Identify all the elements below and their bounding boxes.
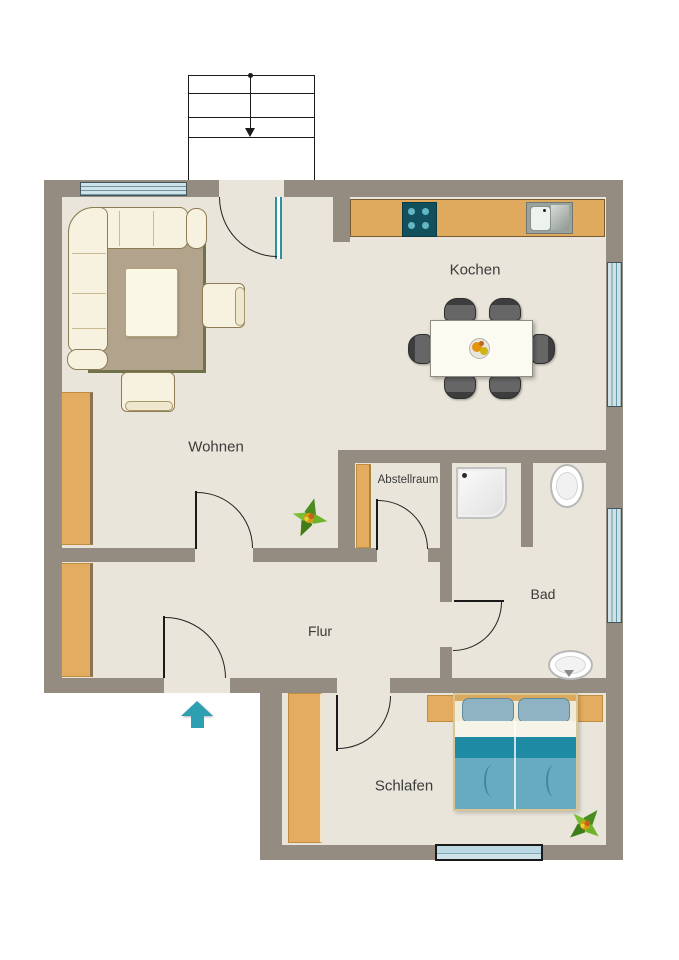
wall-schlafen-left [260, 693, 282, 860]
armchair-back [125, 401, 173, 411]
wall-abstell-bottom-left [355, 548, 377, 562]
plant-icon [287, 496, 331, 540]
sink-drain-dot [543, 209, 546, 212]
room-label-schlafen: Schlafen [375, 778, 433, 795]
wall-flur-bottom-right [230, 678, 337, 693]
sofa-armrest-bottom [67, 349, 108, 370]
wardrobe-schlafen [288, 693, 323, 843]
wall-kochen-bottom [338, 450, 607, 463]
sink-basin [530, 206, 551, 231]
stair-start-dot [248, 73, 253, 78]
window-schlafen [435, 844, 543, 861]
kitchen-counter [350, 199, 605, 237]
wall-wohnen-flur-left [62, 548, 195, 562]
fruit-yellow [480, 347, 488, 355]
bed-pillow-left [462, 698, 514, 723]
armchair-back [235, 287, 245, 326]
sofa-cushion-seam [72, 293, 106, 294]
shower [456, 467, 507, 519]
fruit-red [479, 341, 484, 346]
sofa-left-section [68, 207, 108, 352]
floor-entrance-doorway [164, 678, 230, 693]
armchair-right [202, 283, 245, 328]
dining-chair-left [408, 334, 431, 364]
sink-drainer [551, 205, 569, 230]
arrow-up-icon [181, 701, 213, 716]
sofa-armrest-right [186, 208, 207, 249]
dining-chair-top-2 [489, 298, 521, 321]
wall-kitchen-stub [333, 197, 350, 242]
cabinet-flur [61, 563, 93, 677]
toilet [550, 464, 584, 508]
wall-bad-left-lower [440, 647, 452, 680]
dining-table [430, 320, 533, 377]
dining-chair-bottom-2 [489, 376, 521, 399]
wall-left [44, 180, 62, 693]
wall-wohnen-flur-right [253, 548, 338, 562]
dining-chair-right [532, 334, 555, 364]
room-label-kochen: Kochen [450, 262, 501, 279]
floor-schlafen-doorway [337, 678, 390, 693]
stair-step [189, 93, 314, 94]
sink-faucet [564, 670, 574, 677]
nightstand-left [427, 695, 455, 722]
cabinet-wohnen [61, 392, 93, 545]
wall-top-right [284, 180, 623, 197]
arrow-down-icon [245, 128, 255, 137]
plant-icon [564, 804, 606, 846]
burner [421, 221, 430, 230]
bed-fold-curve [546, 765, 562, 797]
sofa-cushion-seam [119, 211, 120, 246]
bed-pillow-right [518, 698, 570, 723]
burner [407, 207, 416, 216]
stair-direction-line [250, 75, 251, 135]
wall-bad-left-upper [440, 463, 452, 602]
wall-bad-divider-stub [521, 463, 533, 547]
abstell-shelf [356, 464, 371, 548]
bed-center-divider [514, 721, 516, 809]
burner [421, 207, 430, 216]
floor-stairs-doorway [219, 180, 284, 197]
room-label-bad: Bad [531, 586, 556, 602]
wall-flur-bottom-left [44, 678, 164, 693]
toilet-bowl [556, 472, 578, 500]
sofa-cushion-seam [72, 253, 106, 254]
kitchen-sink [526, 202, 573, 234]
stair-step [189, 137, 314, 138]
stair-step [189, 117, 314, 118]
stove [402, 202, 437, 237]
nightstand-right [576, 695, 603, 722]
room-label-flur: Flur [308, 623, 332, 639]
wall-schlafen-top [390, 678, 623, 693]
coffee-table [125, 268, 178, 337]
shower-drain-dot [462, 473, 467, 478]
window-kochen [607, 262, 622, 407]
room-label-abstellraum: Abstellraum [378, 474, 439, 486]
room-label-wohnen: Wohnen [188, 439, 244, 456]
armchair-bottom [121, 372, 175, 412]
sofa-cushion-seam [153, 211, 154, 246]
sofa-cushion-seam [72, 328, 106, 329]
double-bed [453, 693, 578, 811]
wall-abstell-left [338, 453, 355, 562]
arrow-stem [191, 716, 204, 728]
burner [407, 221, 416, 230]
entrance-marker [181, 701, 214, 728]
exterior-stairs [188, 75, 315, 180]
dining-chair-bottom-1 [444, 376, 476, 399]
window-bad [607, 508, 622, 623]
floor-plan: Kochen Wohnen Abstellraum Bad Flur Schla… [0, 0, 679, 960]
window-wohnen [80, 182, 187, 196]
bed-fold-curve [484, 765, 500, 797]
dining-chair-top-1 [444, 298, 476, 321]
